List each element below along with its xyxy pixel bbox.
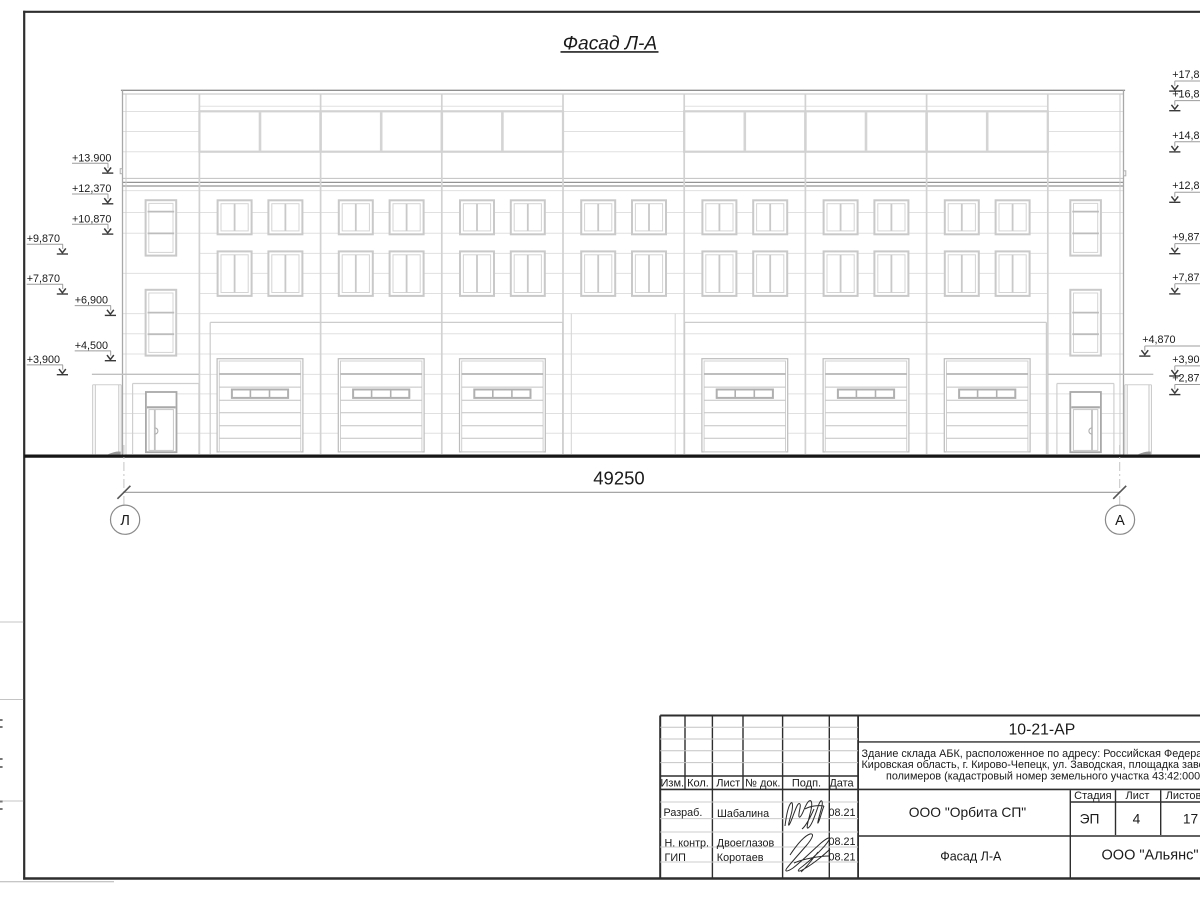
svg-text:+16,870: +16,870 (1172, 89, 1200, 101)
svg-text:Здание склада АБК, расположенн: Здание склада АБК, расположенное по адре… (862, 748, 1200, 760)
svg-text:Н. контр.: Н. контр. (665, 838, 710, 850)
svg-text:Лист: Лист (1126, 790, 1150, 802)
svg-text:ООО "Альянс": ООО "Альянс" (1102, 847, 1199, 863)
svg-text:17: 17 (1183, 811, 1198, 826)
svg-text:+6,900: +6,900 (75, 295, 108, 307)
svg-text:+2,870: +2,870 (1172, 373, 1200, 385)
svg-text:08.21: 08.21 (828, 851, 855, 863)
svg-text:А: А (1115, 513, 1125, 529)
svg-text:Шабалина: Шабалина (717, 808, 769, 820)
svg-text:Кол.: Кол. (687, 777, 709, 789)
svg-text:Листов: Листов (1166, 790, 1200, 802)
svg-text:08.21: 08.21 (828, 807, 855, 819)
svg-text:Коротаев: Коротаев (717, 852, 764, 864)
svg-text:ЭП: ЭП (1080, 811, 1100, 826)
svg-text:+9,870: +9,870 (27, 233, 60, 245)
svg-text:+14,870: +14,870 (1172, 130, 1200, 142)
svg-text:Лист: Лист (716, 777, 740, 789)
svg-text:Разраб.: Разраб. (664, 807, 703, 819)
svg-text:полимеров (кадастровый номер з: полимеров (кадастровый номер земельного … (886, 771, 1200, 783)
svg-text:08.21: 08.21 (828, 836, 855, 848)
svg-text:Изм.: Изм. (661, 777, 685, 789)
svg-text:+3,900: +3,900 (1172, 354, 1200, 366)
svg-text:+13.900: +13.900 (72, 152, 111, 164)
svg-text:Стадия: Стадия (1074, 790, 1112, 802)
svg-text:+10,870: +10,870 (72, 213, 111, 225)
svg-text:+12,870: +12,870 (1172, 180, 1200, 192)
svg-text:+9,870: +9,870 (1172, 232, 1200, 244)
svg-text:ГИП: ГИП (665, 852, 686, 864)
svg-text:Фасад Л-А: Фасад Л-А (940, 850, 1002, 864)
svg-text:Кировская область, г. Кирово-Ч: Кировская область, г. Кирово-Чепецк, ул.… (862, 759, 1200, 771)
svg-text:+17,870: +17,870 (1172, 69, 1200, 81)
svg-text:+4,870: +4,870 (1142, 334, 1175, 346)
svg-text:Двоеглазов: Двоеглазов (717, 838, 775, 850)
svg-text:Подп.: Подп. (792, 777, 821, 789)
svg-text:№ док.: № док. (745, 777, 780, 789)
svg-text:+7,870: +7,870 (27, 273, 60, 285)
svg-text:+12,370: +12,370 (72, 183, 111, 195)
svg-text:49250: 49250 (593, 468, 644, 489)
svg-text:ООО "Орбита СП": ООО "Орбита СП" (909, 805, 1026, 820)
svg-text:4: 4 (1133, 811, 1141, 826)
svg-text:+4,500: +4,500 (75, 340, 108, 352)
svg-text:+7,870: +7,870 (1172, 272, 1200, 284)
svg-text:+3,900: +3,900 (27, 354, 60, 366)
svg-text:Дата: Дата (829, 777, 854, 789)
svg-text:10-21-АР: 10-21-АР (1009, 722, 1076, 739)
svg-text:Л: Л (120, 513, 130, 529)
